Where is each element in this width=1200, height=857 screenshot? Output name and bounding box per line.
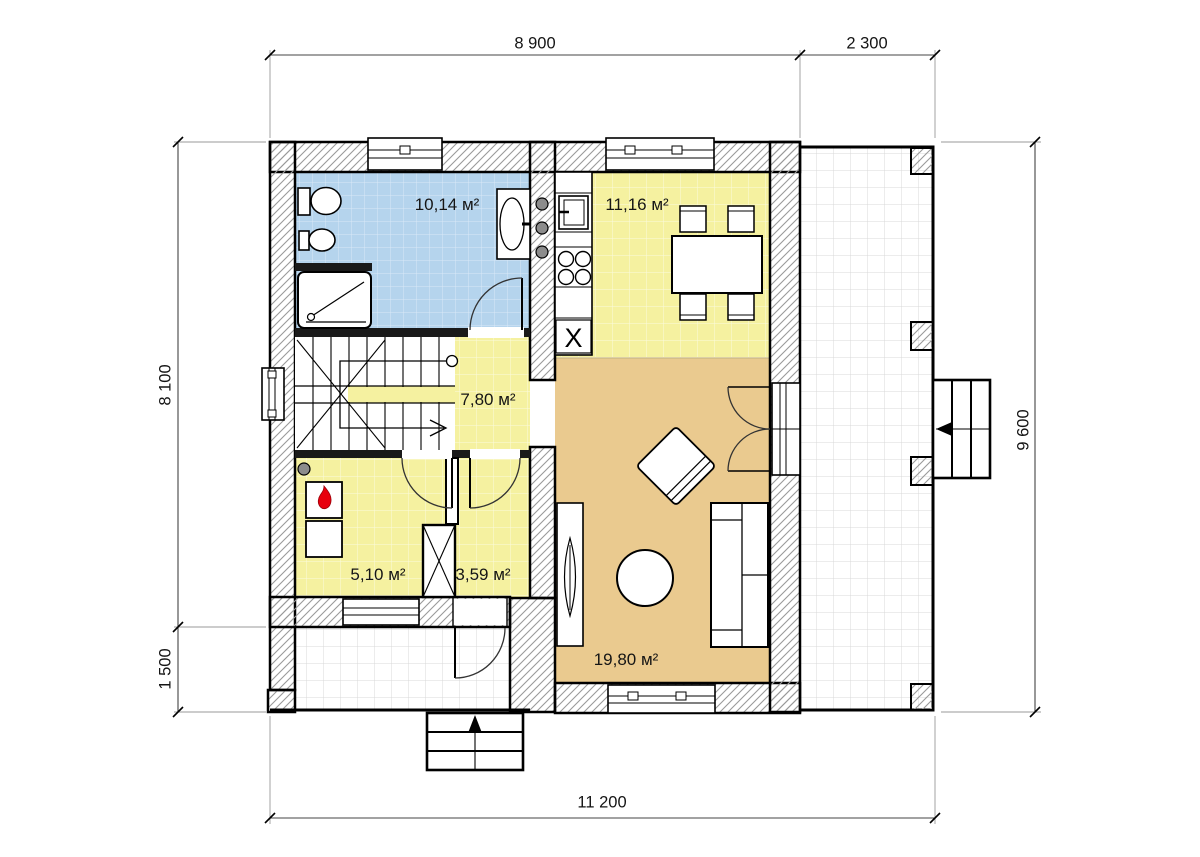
stair-window <box>262 368 284 420</box>
room-area-label-living: 19,80 м² <box>594 650 659 670</box>
boiler-window <box>343 599 419 625</box>
dim-label-top-main: 8 900 <box>514 35 555 54</box>
partition-bath-a <box>295 328 470 337</box>
terrace-floor <box>800 147 933 710</box>
stair-landing-strip <box>348 387 455 402</box>
partition-hall-a <box>295 450 402 458</box>
bathroom-window <box>368 138 442 170</box>
boiler-unit <box>306 482 342 518</box>
shower-stub-wall <box>295 263 372 271</box>
living-window <box>608 685 715 713</box>
porch-steps <box>427 713 523 770</box>
terrace-column-3 <box>911 457 933 485</box>
staircase <box>295 337 458 450</box>
room-area-label-entry: 3,59 м² <box>455 565 510 585</box>
dim-label-top-terrace: 2 300 <box>846 35 887 54</box>
kitchen-sink: X <box>556 320 591 353</box>
vent-stack-icons <box>536 198 548 258</box>
water-tank <box>306 521 342 557</box>
dim-label-right-total: 9 600 <box>1015 409 1034 450</box>
sink-x-symbol: X <box>564 323 582 353</box>
washbasin <box>497 189 530 259</box>
sofa <box>711 503 768 647</box>
kitchen-window <box>606 138 714 170</box>
wardrobe <box>423 525 455 597</box>
toilet <box>298 188 341 216</box>
room-area-label-hall: 7,80 м² <box>460 390 515 410</box>
room-area-label-kitchen: 11,16 м² <box>605 195 668 215</box>
pipe-icon <box>298 463 310 475</box>
partition-hall-b <box>452 450 470 458</box>
terrace-column-1 <box>911 148 933 174</box>
dim-label-bottom-total: 11 200 <box>577 794 626 813</box>
terrace-steps <box>933 380 990 478</box>
room-area-label-bathroom: 10,14 м² <box>415 195 480 215</box>
shower-tray <box>298 272 371 328</box>
room-area-label-boiler: 5,10 м² <box>350 565 405 585</box>
tv-stand <box>557 503 583 646</box>
wall-interior-upper <box>530 142 555 380</box>
porch-floor <box>295 627 510 711</box>
dim-label-left-porch: 1 500 <box>157 648 176 689</box>
partition-hall-c <box>520 450 530 458</box>
terrace-column-2 <box>911 322 933 350</box>
round-table <box>617 550 673 606</box>
floor-plan-page: X <box>0 0 1200 857</box>
bidet <box>299 229 335 251</box>
wall-center-block <box>510 598 555 712</box>
terrace-column-4 <box>911 684 933 710</box>
dim-label-left-house: 8 100 <box>157 364 176 405</box>
wall-interior-lower <box>530 447 555 598</box>
fridge <box>559 196 588 229</box>
